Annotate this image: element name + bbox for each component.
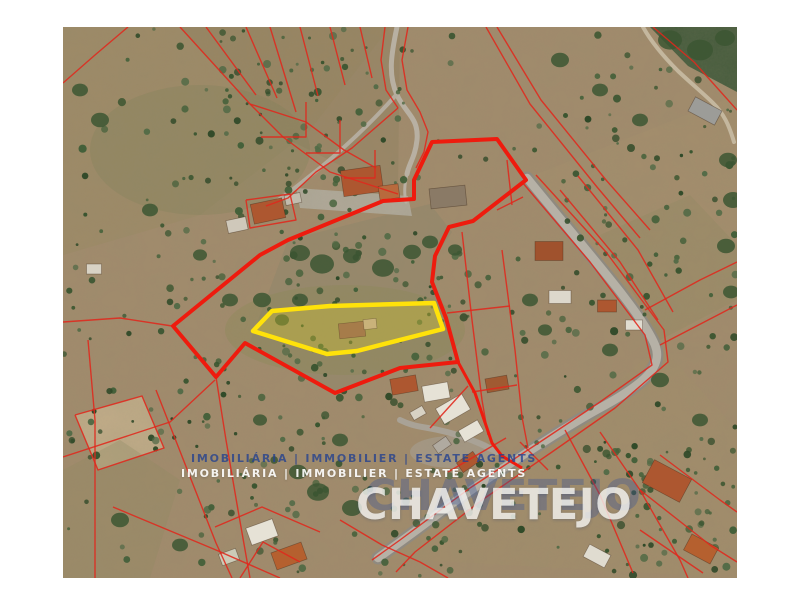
page-frame: IMOBILIÁRIA | IMMOBILIER | ESTATE AGENTS… (0, 0, 800, 600)
scene-svg (63, 27, 737, 578)
aerial-photo (63, 27, 737, 578)
